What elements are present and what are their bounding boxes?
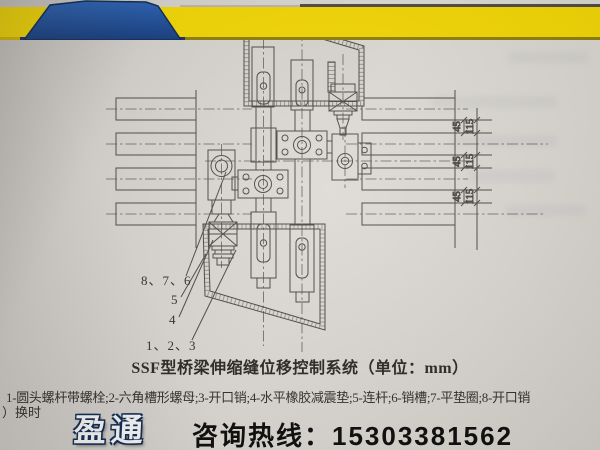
parts-legend: 1-圆头螺杆带螺栓;2-六角槽形螺母;3-开口销;4-水平橡胶减震垫;5-连杆;…: [6, 387, 530, 406]
ad-banner: [0, 0, 600, 40]
flange-plate-lower: [232, 170, 288, 198]
dim-115: 115: [465, 119, 476, 134]
dim-45: 45: [452, 121, 463, 132]
expansion-joint-diagram: 45 115 45 115 45 115: [0, 0, 600, 410]
brand-flag-shape: [24, 1, 181, 40]
callout-1-2-3: 1、2、3: [146, 335, 197, 354]
dim-115: 115: [465, 154, 476, 169]
callout-4: 4: [169, 312, 177, 328]
hotline-text: 咨询热线：15303381562: [192, 416, 513, 450]
parts-legend-overflow: ）换时: [2, 402, 41, 421]
brand-logo-text: 盈通: [51, 405, 171, 450]
dim-45: 45: [452, 156, 463, 167]
dim-115: 115: [465, 189, 476, 204]
bridge-deck-right: [346, 90, 548, 248]
callout-5: 5: [171, 292, 179, 308]
dim-45: 45: [452, 191, 463, 202]
flange-plate-upper: [277, 131, 332, 159]
banner-bottom-corner: [0, 37, 20, 40]
photographed-book-page: 45 115 45 115 45 115: [0, 0, 600, 450]
callout-8-7-6: 8、7、6: [141, 270, 192, 289]
figure-caption: SSF型桥梁伸缩缝位移控制系统（单位：mm）: [0, 354, 600, 378]
